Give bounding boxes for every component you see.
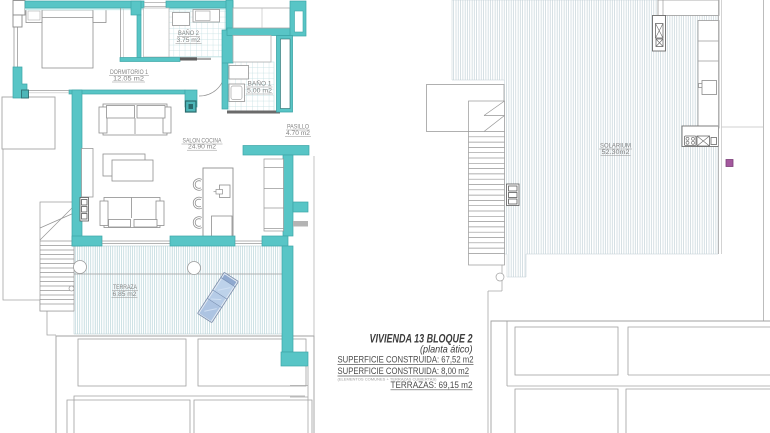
svg-text:TERRAZA: TERRAZA xyxy=(113,285,137,291)
svg-text:BAÑO 1: BAÑO 1 xyxy=(248,81,273,88)
svg-text:TERRAZAS: 69,15 m2: TERRAZAS: 69,15 m2 xyxy=(391,380,473,391)
svg-text:SOLARIUM: SOLARIUM xyxy=(600,144,631,150)
svg-text:VIVIENDA 13 BLOQUE 2: VIVIENDA 13 BLOQUE 2 xyxy=(370,332,473,346)
svg-text:SUPERFICIE CONSTRUIDA: 67,52 m: SUPERFICIE CONSTRUIDA: 67,52 m2 xyxy=(338,355,474,366)
svg-text:SALON COCINA: SALON COCINA xyxy=(183,139,222,145)
svg-text:DORMITORIO 1: DORMITORIO 1 xyxy=(110,70,149,76)
svg-text:BAÑO 2: BAÑO 2 xyxy=(178,30,200,37)
svg-text:4.70 m2: 4.70 m2 xyxy=(286,131,311,137)
svg-text:6.85 m2: 6.85 m2 xyxy=(113,292,138,298)
svg-text:5.00 m2: 5.00 m2 xyxy=(247,89,273,95)
svg-text:3.75 m2: 3.75 m2 xyxy=(177,38,202,44)
svg-text:24.90 m2: 24.90 m2 xyxy=(188,145,217,151)
svg-text:52.30m2: 52.30m2 xyxy=(602,150,631,156)
svg-text:12.05 m2: 12.05 m2 xyxy=(113,77,145,83)
svg-text:SUPERFICIE CONSTRUIDA: 8,00 m2: SUPERFICIE CONSTRUIDA: 8,00 m2 xyxy=(338,366,470,377)
svg-text:PASILLO: PASILLO xyxy=(287,125,309,131)
